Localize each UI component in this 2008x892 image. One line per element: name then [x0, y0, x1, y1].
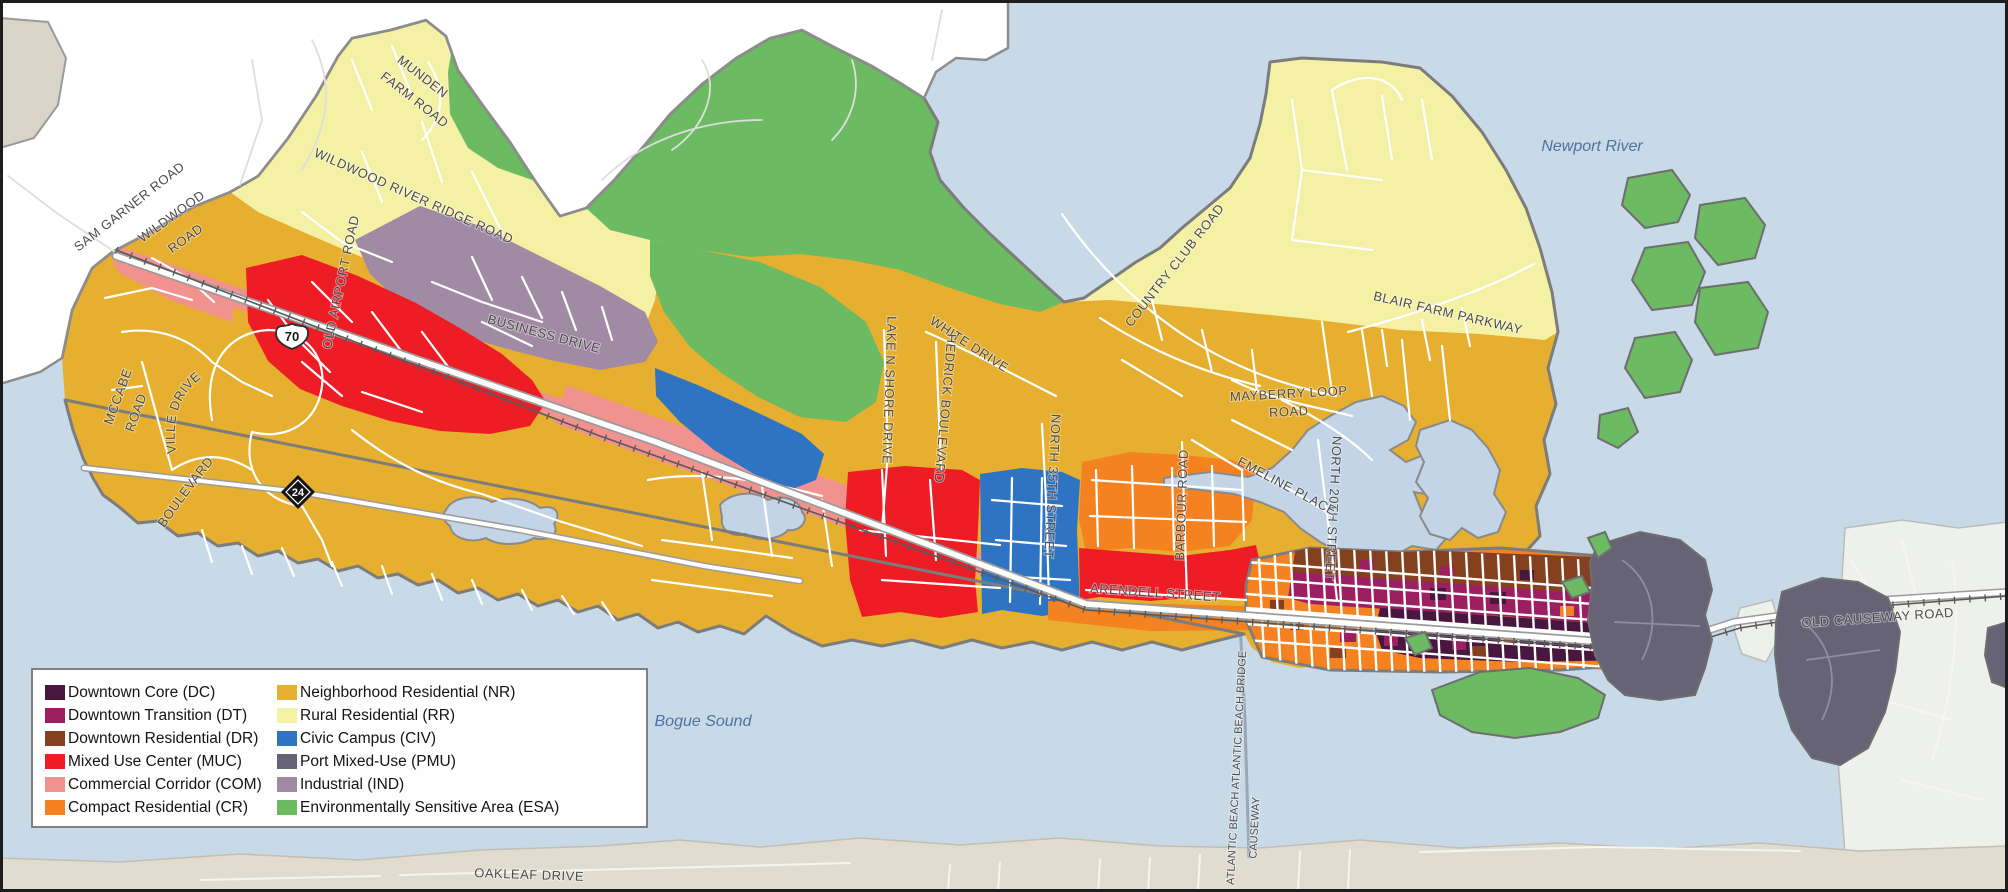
dc-label: Downtown Core (DC)	[68, 684, 215, 702]
legend-item-dt: Downtown Transition (DT)	[45, 705, 277, 726]
us-70-number: 70	[285, 329, 299, 344]
dr-swatch	[45, 731, 65, 746]
legend-item-civ: Civic Campus (CIV)	[277, 728, 638, 749]
legend-item-nr: Neighborhood Residential (NR)	[277, 682, 638, 703]
dr-label: Downtown Residential (DR)	[68, 730, 258, 748]
cr-swatch	[45, 800, 65, 815]
legend-item-esa: Environmentally Sensitive Area (ESA)	[277, 797, 638, 818]
esa-label: Environmentally Sensitive Area (ESA)	[300, 799, 559, 817]
legend: Downtown Core (DC) Downtown Transition (…	[31, 668, 648, 828]
ind-swatch	[277, 777, 297, 792]
land-use-map: 70 24 MUNDEN FARM ROAD WILDWOOD RIVER RI…	[0, 0, 2008, 892]
esa-swatch	[277, 800, 297, 815]
dt-swatch	[45, 708, 65, 723]
com-label: Commercial Corridor (COM)	[68, 776, 262, 794]
civ-swatch	[277, 731, 297, 746]
dc-swatch	[45, 685, 65, 700]
nc-24-number: 24	[292, 487, 305, 499]
legend-column-2: Neighborhood Residential (NR) Rural Resi…	[277, 682, 638, 818]
legend-item-ind: Industrial (IND)	[277, 774, 638, 795]
com-swatch	[45, 777, 65, 792]
pmu-swatch	[277, 754, 297, 769]
legend-item-dr: Downtown Residential (DR)	[45, 728, 277, 749]
muc-label: Mixed Use Center (MUC)	[68, 753, 242, 771]
mayberry-loop-road-label-2: ROAD	[1269, 403, 1309, 420]
legend-item-rr: Rural Residential (RR)	[277, 705, 638, 726]
newport-river-label: Newport River	[1541, 138, 1643, 155]
rr-label: Rural Residential (RR)	[300, 707, 455, 725]
muc-swatch	[45, 754, 65, 769]
zone-compact-residential-central	[1079, 452, 1256, 552]
legend-item-dc: Downtown Core (DC)	[45, 682, 277, 703]
bogue-sound-label: Bogue Sound	[655, 713, 753, 730]
legend-column-1: Downtown Core (DC) Downtown Transition (…	[45, 682, 277, 818]
rr-swatch	[277, 708, 297, 723]
legend-item-pmu: Port Mixed-Use (PMU)	[277, 751, 638, 772]
dt-label: Downtown Transition (DT)	[68, 707, 247, 725]
nr-swatch	[277, 685, 297, 700]
legend-item-muc: Mixed Use Center (MUC)	[45, 751, 277, 772]
legend-item-cr: Compact Residential (CR)	[45, 797, 277, 818]
pmu-label: Port Mixed-Use (PMU)	[300, 753, 456, 771]
civ-label: Civic Campus (CIV)	[300, 730, 436, 748]
cr-label: Compact Residential (CR)	[68, 799, 248, 817]
legend-item-com: Commercial Corridor (COM)	[45, 774, 277, 795]
nr-label: Neighborhood Residential (NR)	[300, 684, 515, 702]
ind-label: Industrial (IND)	[300, 776, 404, 794]
